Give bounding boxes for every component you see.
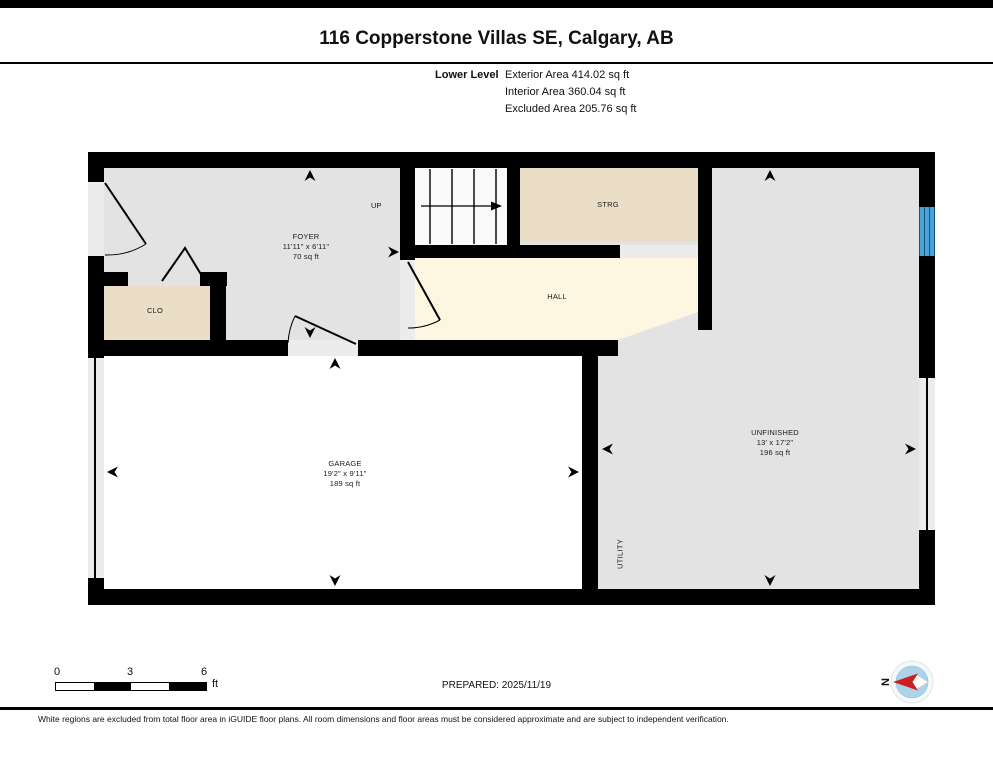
garage-name: GARAGE	[323, 459, 366, 469]
floor-plan: FOYER 11'11" x 6'11" 70 sq ft CLO STRG H…	[88, 152, 935, 605]
north-compass-icon	[888, 658, 936, 706]
interior-area-text: Interior Area 360.04 sq ft	[505, 86, 625, 98]
room-label-unfinished: UNFINISHED 13' x 17'2" 196 sq ft	[751, 428, 799, 458]
scale-tick-0: 0	[51, 666, 63, 678]
strg-name: STRG	[597, 200, 619, 210]
top-border-bar	[0, 0, 993, 8]
page-title: 116 Copperstone Villas SE, Calgary, AB	[0, 28, 993, 50]
foyer-area: 70 sq ft	[283, 252, 329, 262]
stairs-area	[415, 168, 507, 245]
compass-graphic	[888, 658, 936, 706]
wall-clo-top-right	[200, 272, 227, 286]
room-label-foyer: FOYER 11'11" x 6'11" 70 sq ft	[283, 232, 329, 262]
strg-hall-opening	[620, 245, 698, 258]
right-wall-opening	[919, 378, 935, 530]
entry-door-opening	[88, 182, 104, 256]
foyer-name: FOYER	[283, 232, 329, 242]
room-label-clo: CLO	[147, 306, 163, 316]
garage-area: 189 sq ft	[323, 479, 366, 489]
wall-stairs-bottom	[400, 245, 620, 258]
unfinished-name: UNFINISHED	[751, 428, 799, 438]
room-label-strg: STRG	[597, 200, 619, 210]
footer-divider	[0, 707, 993, 710]
wall-left-upper	[88, 152, 104, 182]
hall-door-opening	[400, 260, 415, 340]
window	[919, 207, 935, 256]
wall-garage-top-left	[88, 340, 288, 356]
foyer-dims: 11'11" x 6'11"	[283, 242, 329, 252]
unfinished-area: 196 sq ft	[751, 448, 799, 458]
scale-tick-6: 6	[198, 666, 210, 678]
clo-name: CLO	[147, 306, 163, 316]
room-label-garage: GARAGE 19'2" x 9'11" 189 sq ft	[323, 459, 366, 489]
wall-right-upper	[919, 152, 935, 207]
scale-tick-3: 3	[124, 666, 136, 678]
garage-entry-door-opening	[288, 340, 358, 356]
wall-bottom	[88, 589, 935, 605]
wall-stairs-right	[507, 168, 520, 245]
unfinished-dims: 13' x 17'2"	[751, 438, 799, 448]
wall-garage-top-right	[358, 340, 618, 356]
right-opening-line	[926, 378, 928, 530]
wall-left-lower	[88, 578, 104, 605]
exterior-area-text: Exterior Area 414.02 sq ft	[505, 69, 629, 81]
wall-garage-right	[582, 340, 598, 589]
wall-right-lower	[919, 530, 935, 605]
room-label-hall: HALL	[547, 292, 567, 302]
prepared-date: PREPARED: 2025/11/19	[0, 680, 993, 691]
stairs-up-label: UP	[371, 201, 381, 210]
wall-strg-right	[698, 152, 712, 330]
title-divider	[0, 62, 993, 64]
garage-door	[88, 358, 104, 578]
room-label-utility: UTILITY	[616, 539, 625, 569]
wall-right-middle	[919, 256, 935, 378]
garage-door-line	[94, 358, 96, 578]
excluded-area-text: Excluded Area 205.76 sq ft	[505, 103, 636, 115]
disclaimer-text: White regions are excluded from total fl…	[38, 714, 729, 724]
garage-dims: 19'2" x 9'11"	[323, 469, 366, 479]
wall-clo-top-left	[104, 272, 128, 286]
wall-top	[88, 152, 935, 168]
hall-name: HALL	[547, 292, 567, 302]
level-label: Lower Level	[435, 69, 499, 81]
